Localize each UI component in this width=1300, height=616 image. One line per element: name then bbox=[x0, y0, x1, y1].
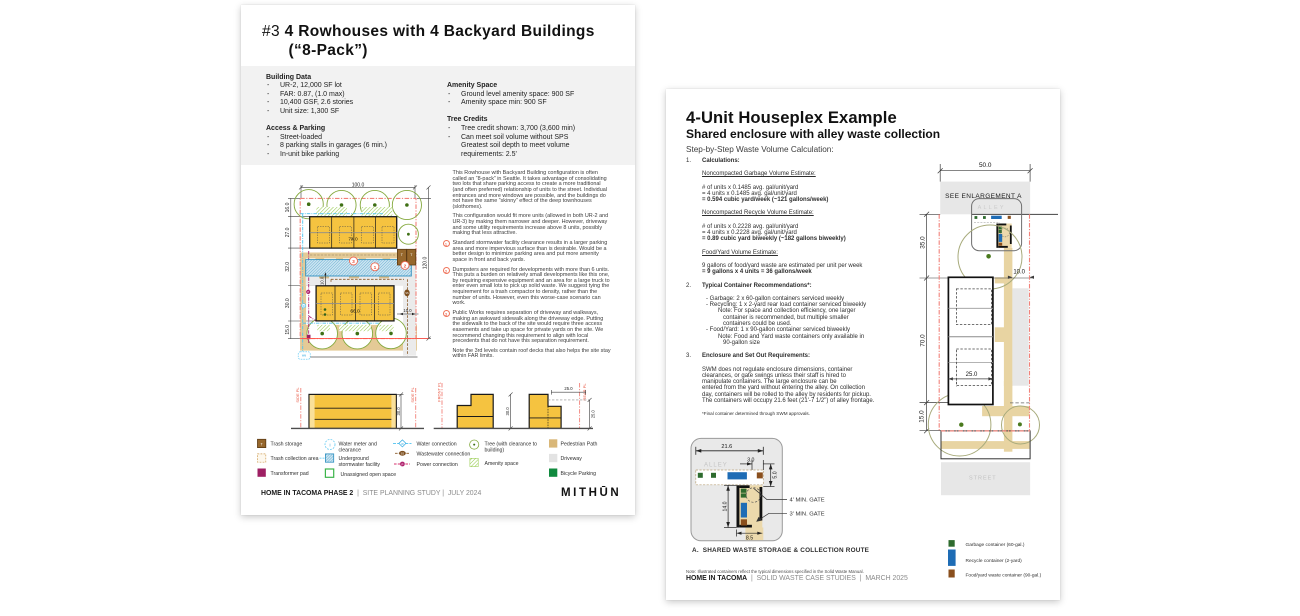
svg-text:30.0: 30.0 bbox=[505, 407, 510, 416]
svg-text:66.0: 66.0 bbox=[350, 309, 360, 315]
svg-text:50.0: 50.0 bbox=[979, 162, 992, 169]
svg-text:Unassigned open space: Unassigned open space bbox=[341, 472, 397, 478]
svg-text:21.6: 21.6 bbox=[721, 444, 732, 450]
svg-text:Trash collection area: Trash collection area bbox=[271, 456, 319, 462]
svg-text:Transformer pad: Transformer pad bbox=[271, 471, 309, 477]
svg-text:Garbage container (60-gal.): Garbage container (60-gal.) bbox=[966, 542, 1025, 548]
svg-text:stormwater facility: stormwater facility bbox=[339, 462, 381, 468]
svg-text:STREET: STREET bbox=[969, 476, 997, 482]
svg-text:REAR PL: REAR PL bbox=[582, 383, 587, 401]
svg-text:building): building) bbox=[485, 448, 505, 454]
svg-text:clearance: clearance bbox=[339, 448, 362, 454]
svg-text:100.0: 100.0 bbox=[352, 183, 365, 189]
svg-text:14.0: 14.0 bbox=[722, 501, 728, 511]
svg-text:W: W bbox=[401, 442, 404, 446]
svg-text:i: i bbox=[329, 442, 330, 447]
svg-text:35.0: 35.0 bbox=[920, 236, 927, 249]
svg-text:P: P bbox=[401, 462, 403, 466]
svg-text:SS: SS bbox=[401, 452, 405, 456]
svg-text:2: 2 bbox=[404, 263, 407, 269]
svg-text:32.0: 32.0 bbox=[285, 262, 291, 272]
svg-text:ALLEY: ALLEY bbox=[978, 205, 1006, 211]
svg-text:Pedestrian Path: Pedestrian Path bbox=[561, 442, 598, 448]
svg-text:ALLEY: ALLEY bbox=[704, 463, 728, 469]
svg-text:Bicycle Parking: Bicycle Parking bbox=[561, 471, 597, 477]
svg-text:120.0: 120.0 bbox=[423, 257, 429, 270]
svg-text:3' MIN. GATE: 3' MIN. GATE bbox=[790, 511, 825, 517]
svg-text:30.0: 30.0 bbox=[396, 407, 401, 416]
svg-text:Recycle container (2-yard): Recycle container (2-yard) bbox=[966, 558, 1023, 564]
svg-text:Driveway: Driveway bbox=[561, 456, 583, 462]
svg-text:27.0: 27.0 bbox=[285, 227, 291, 237]
svg-text:25.0: 25.0 bbox=[590, 409, 595, 418]
svg-text:15.0: 15.0 bbox=[285, 325, 291, 335]
svg-text:Water connection: Water connection bbox=[417, 442, 457, 448]
svg-text:70.0: 70.0 bbox=[920, 334, 927, 347]
svg-text:5.0: 5.0 bbox=[772, 471, 778, 478]
svg-text:WM: WM bbox=[302, 355, 306, 358]
svg-text:74.0: 74.0 bbox=[348, 237, 358, 243]
svg-text:10.0: 10.0 bbox=[1013, 270, 1025, 276]
svg-text:3: 3 bbox=[352, 259, 355, 265]
svg-text:25.0: 25.0 bbox=[966, 372, 978, 378]
svg-text:3.0: 3.0 bbox=[747, 457, 754, 463]
svg-text:Trash storage: Trash storage bbox=[271, 442, 303, 448]
svg-text:SS: SS bbox=[405, 292, 409, 295]
svg-text:SIDE PL: SIDE PL bbox=[410, 387, 415, 403]
svg-text:SIDE PL: SIDE PL bbox=[295, 387, 300, 403]
svg-text:Amenity space: Amenity space bbox=[485, 461, 519, 467]
svg-text:Power connection: Power connection bbox=[417, 462, 458, 468]
svg-text:4' MIN. GATE: 4' MIN. GATE bbox=[790, 498, 825, 504]
svg-text:16.0: 16.0 bbox=[285, 202, 291, 212]
svg-text:FRONT PL: FRONT PL bbox=[436, 381, 441, 401]
svg-text:25.0: 25.0 bbox=[564, 386, 573, 391]
svg-text:30.0: 30.0 bbox=[285, 298, 291, 308]
svg-text:10.0: 10.0 bbox=[319, 276, 324, 285]
svg-text:15.0: 15.0 bbox=[919, 410, 926, 423]
svg-text:Wastewater connection: Wastewater connection bbox=[417, 451, 471, 457]
svg-text:P: P bbox=[307, 290, 309, 294]
svg-text:8.5: 8.5 bbox=[746, 535, 753, 541]
svg-text:1: 1 bbox=[374, 265, 377, 271]
svg-text:Food/yard waste container (90-: Food/yard waste container (90-gal.) bbox=[966, 572, 1042, 578]
svg-text:10.0: 10.0 bbox=[403, 308, 412, 313]
